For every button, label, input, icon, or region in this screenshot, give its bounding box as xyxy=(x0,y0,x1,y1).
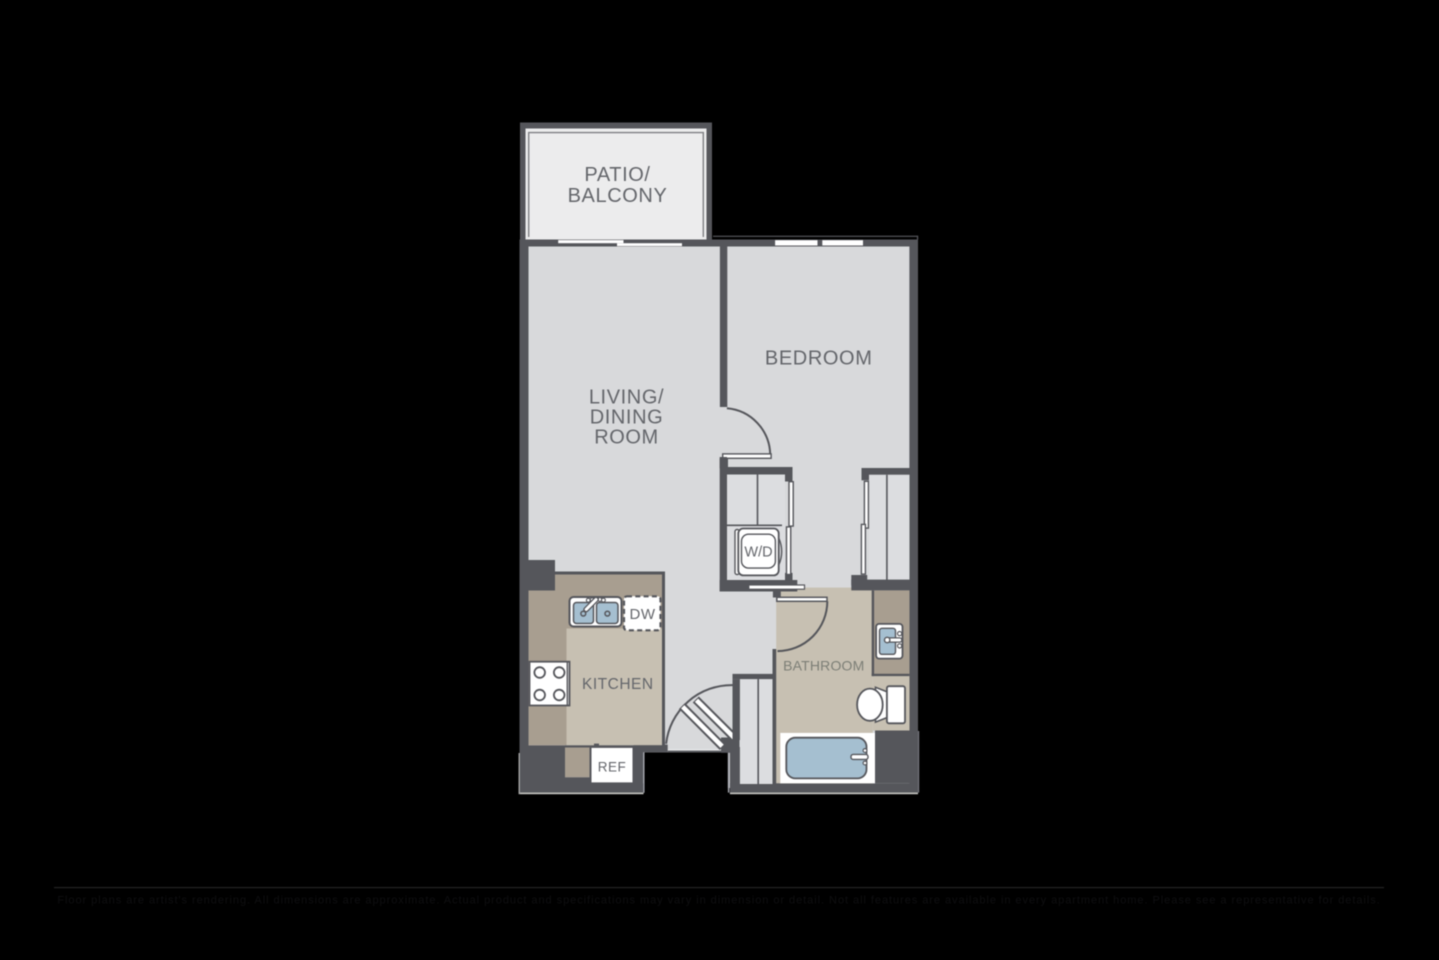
svg-text:BALCONY: BALCONY xyxy=(568,185,668,207)
svg-text:ROOM: ROOM xyxy=(594,427,659,449)
svg-text:BEDROOM: BEDROOM xyxy=(765,347,873,369)
svg-text:KITCHEN: KITCHEN xyxy=(582,676,654,693)
svg-text:PATIO/: PATIO/ xyxy=(584,164,650,186)
svg-text:W/D: W/D xyxy=(744,544,772,560)
svg-text:LIVING/: LIVING/ xyxy=(589,386,664,408)
svg-text:DW: DW xyxy=(630,606,656,623)
svg-text:Floor plans are artist's rende: Floor plans are artist's rendering. All … xyxy=(57,895,1380,907)
svg-text:REF: REF xyxy=(598,759,627,774)
svg-text:DINING: DINING xyxy=(590,407,664,429)
svg-text:BATHROOM: BATHROOM xyxy=(783,657,864,673)
